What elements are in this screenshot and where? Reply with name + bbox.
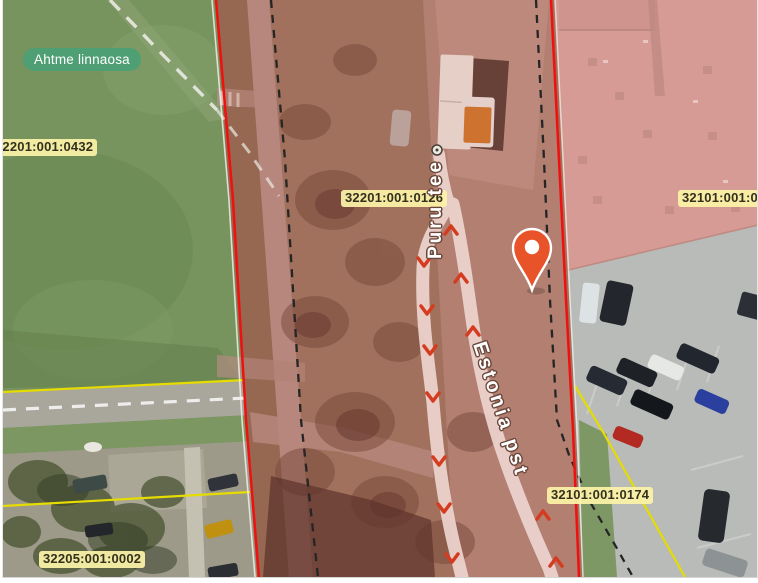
aerial-basemap [3,0,757,577]
bottom-left-area [3,380,259,577]
road-node-icon [432,145,442,155]
map-viewport[interactable]: Ahtme linnaosa 32201:001:0432 32201:001:… [2,0,758,578]
